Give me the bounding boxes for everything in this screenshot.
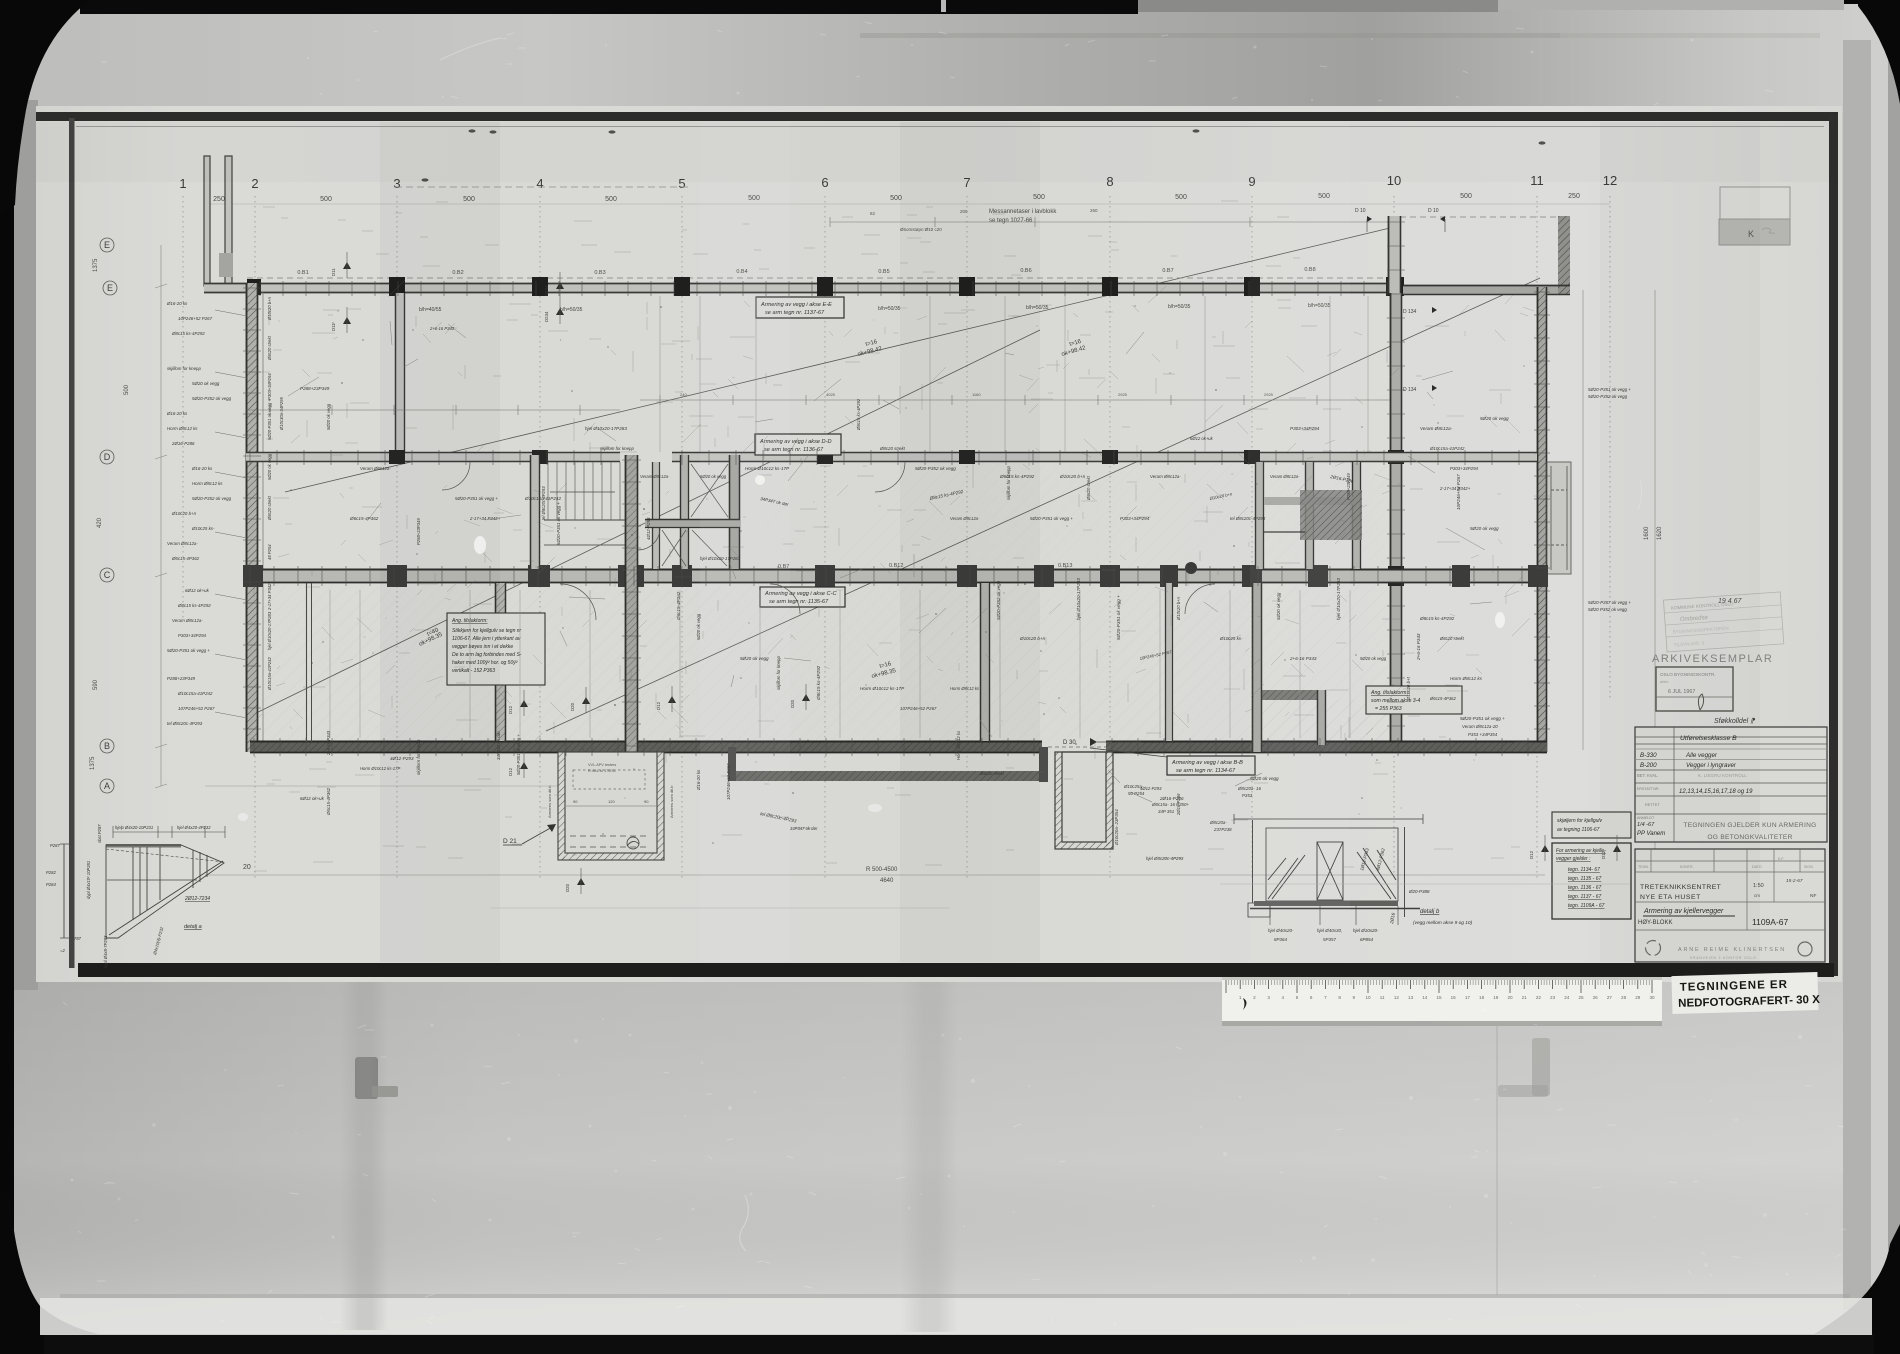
svg-text:Ø8c20 strekt: Ø8c20 strekt [879, 446, 906, 451]
svg-text:2Ø16-P286: 2Ø16-P286 [171, 441, 195, 446]
svg-text:107P246+52 P267: 107P246+52 P267 [726, 763, 731, 800]
svg-text:21: 21 [1522, 995, 1528, 1000]
svg-text:tel Ø8c20c-4P293: tel Ø8c20c-4P293 [541, 486, 546, 520]
svg-text:Ø10c30a-34P295: Ø10c30a-34P295 [279, 397, 284, 431]
svg-text:VVL.APV testers: VVL.APV testers [588, 763, 616, 767]
svg-text:tegn. 1135 - 67: tegn. 1135 - 67 [1568, 876, 1601, 882]
svg-text:Ø6c15-4P362: Ø6c15-4P362 [1429, 696, 1457, 701]
svg-text:48 P254: 48 P254 [267, 544, 272, 560]
svg-text:tel Ø8c20c-4P293: tel Ø8c20c-4P293 [1230, 516, 1266, 521]
svg-text:Veram Ø8c12a-: Veram Ø8c12a- [950, 516, 980, 521]
svg-text:1: 1 [1239, 995, 1242, 1000]
svg-text:=2: =2 [60, 948, 65, 953]
svg-text:22: 22 [1536, 995, 1542, 1000]
svg-text:Veram Ø8c12a-: Veram Ø8c12a- [1270, 474, 1300, 479]
svg-text:34P347 ok dør: 34P347 ok dør [496, 731, 501, 760]
svg-text:5Ø20-P351 ok vegg +: 5Ø20-P351 ok vegg + [1460, 716, 1505, 721]
svg-text:2+6-16 P343: 2+6-16 P343 [326, 730, 331, 756]
svg-text:Ø8c20a-: Ø8c20a- [1209, 820, 1227, 825]
svg-text:26: 26 [1593, 995, 1599, 1000]
svg-text:Ø8c20 strekt: Ø8c20 strekt [1439, 636, 1465, 641]
svg-text:P303+34P294: P303+34P294 [1290, 426, 1320, 431]
svg-text:Ø16-20 ks: Ø16-20 ks [166, 301, 188, 306]
svg-text:Horm Ø10c12 ks-17P: Horm Ø10c12 ks-17P [860, 686, 905, 691]
svg-text:5Ø20 P352 ok vegg: 5Ø20 P352 ok vegg [1588, 607, 1627, 612]
svg-text:2: 2 [1253, 995, 1256, 1000]
svg-text:D20: D20 [570, 702, 575, 711]
svg-text:Ø8c20a- 16: Ø8c20a- 16 [1237, 786, 1262, 791]
svg-text:hjel Ø10x20-17P283: hjel Ø10x20-17P283 [1336, 578, 1341, 620]
svg-text:4Ø12-P293: 4Ø12-P293 [390, 756, 414, 761]
svg-text:8: 8 [1338, 995, 1341, 1000]
svg-text:D20: D20 [565, 883, 570, 892]
svg-text:7: 7 [1324, 995, 1327, 1000]
svg-text:D12: D12 [508, 767, 513, 776]
svg-text:A: A [104, 781, 110, 791]
svg-text:Horm Ø8c12 ks: Horm Ø8c12 ks [167, 426, 198, 431]
svg-text:Ø10c20a- 23P354: Ø10c20a- 23P354 [1114, 809, 1119, 846]
svg-text:5Ø20 ok vegg: 5Ø20 ok vegg [267, 453, 272, 480]
svg-text:4Ø12-P293: 4Ø12-P293 [646, 517, 651, 540]
svg-text:Ø8c15a- 16 P350+: Ø8c15a- 16 P350+ [1151, 802, 1189, 807]
svg-text:107P246+52 P267: 107P246+52 P267 [178, 706, 215, 711]
svg-text:dypl Ø4x8-7P283: dypl Ø4x8-7P283 [103, 935, 108, 968]
svg-text:23: 23 [1550, 995, 1556, 1000]
svg-text:hjel Ø8c20c-4P293: hjel Ø8c20c-4P293 [1146, 856, 1184, 861]
svg-text:E: E [107, 283, 113, 293]
svg-text:Ø8c20 strekt: Ø8c20 strekt [267, 495, 272, 521]
svg-text:tegn. 1134- 67: tegn. 1134- 67 [1568, 867, 1600, 873]
svg-text:P284: P284 [46, 882, 56, 887]
svg-text:hjel Ø10x20-17P283: hjel Ø10x20-17P283 [585, 426, 627, 431]
svg-text:Horm Ø8c12 ks: Horm Ø8c12 ks [1450, 676, 1483, 681]
svg-text:29: 29 [1635, 995, 1641, 1000]
svg-text:B: B [104, 741, 110, 751]
svg-text:6P854: 6P854 [1360, 937, 1374, 942]
svg-text:Veram Ø8c12a-: Veram Ø8c12a- [167, 541, 198, 546]
svg-text:12: 12 [1394, 995, 1400, 1000]
svg-text:For armering av kjelle-: For armering av kjelle- [1556, 848, 1606, 854]
svg-text:tegn. 1109A - 67: tegn. 1109A - 67 [1568, 903, 1605, 909]
svg-text:skjøljern for kjellgulv: skjøljern for kjellgulv [1557, 818, 1603, 824]
svg-text:Ø10c25 ks-: Ø10c25 ks- [191, 526, 215, 531]
svg-text:Ø10c25 ks-: Ø10c25 ks- [1219, 636, 1243, 641]
svg-text:2+6-16 P343: 2+6-16 P343 [429, 326, 455, 331]
svg-text:17: 17 [1465, 995, 1471, 1000]
svg-text:5Ø20 ok vegg: 5Ø20 ok vegg [1276, 592, 1281, 620]
svg-text:vegger gjelder :: vegger gjelder : [1556, 856, 1591, 862]
svg-text:590: 590 [93, 679, 99, 690]
svg-text:20: 20 [1507, 995, 1513, 1000]
svg-text:Veram Ø8c12a-: Veram Ø8c12a- [1420, 426, 1453, 431]
svg-text:D11: D11 [331, 268, 336, 276]
svg-text:b/h=50/35: b/h=50/35 [878, 306, 901, 312]
svg-text:Horm Ø10c12 ks-17P: Horm Ø10c12 ks-17P [745, 466, 790, 471]
svg-text:K.F: K.F [1778, 857, 1784, 861]
svg-text:Ø16-20 ks: Ø16-20 ks [696, 769, 701, 791]
svg-text:P287: P287 [50, 843, 60, 848]
svg-text:(vegg mellom akse 9 og 10): (vegg mellom akse 9 og 10) [1413, 920, 1473, 926]
svg-text:28: 28 [1621, 995, 1627, 1000]
svg-text:6Ø12 ok+uk: 6Ø12 ok+uk [300, 796, 325, 801]
svg-text:Ø6c15-4P362: Ø6c15-4P362 [676, 591, 681, 621]
svg-text:som mellom akse 3-4: som mellom akse 3-4 [1371, 698, 1420, 704]
svg-text:D234: D234 [544, 285, 549, 296]
svg-text:Horm Ø10c12 ks-17P: Horm Ø10c12 ks-17P [360, 766, 400, 771]
svg-text:Ø10c20 b+n: Ø10c20 b+n [171, 511, 197, 516]
svg-text:skjillom for knepp: skjillom for knepp [600, 446, 634, 451]
svg-text:D12: D12 [508, 705, 513, 714]
svg-text:Ø8c15 ks-4P292: Ø8c15 ks-4P292 [177, 603, 211, 608]
svg-text:D 10: D 10 [1428, 208, 1439, 214]
svg-text:500: 500 [1175, 194, 1187, 201]
svg-text:Veram Ø8c12a-: Veram Ø8c12a- [1150, 474, 1181, 479]
svg-text:Ø10c20 b+n: Ø10c20 b+n [1176, 596, 1181, 621]
svg-text:5Ø20-P352 ok vegg: 5Ø20-P352 ok vegg [1588, 394, 1628, 399]
svg-text:Ø8c20 strekt: Ø8c20 strekt [267, 335, 272, 361]
svg-text:Armeres som dtl.b: Armeres som dtl.b [547, 785, 552, 818]
svg-text:500: 500 [320, 196, 332, 203]
svg-text:skjillom for knepp: skjillom for knepp [776, 656, 781, 690]
svg-text:Ø6c15-4P362: Ø6c15-4P362 [171, 556, 200, 561]
svg-text:E: E [104, 240, 110, 250]
svg-text:18: 18 [1479, 995, 1485, 1000]
svg-text:dypl Ø4x10² 10P281: dypl Ø4x10² 10P281 [86, 861, 91, 899]
svg-text:Veram Ø8c12a-: Veram Ø8c12a- [172, 618, 203, 623]
svg-text:Ø20-P388: Ø20-P388 [1408, 889, 1430, 894]
svg-text:Ø10c20 b+n: Ø10c20 b+n [1019, 636, 1046, 641]
svg-text:Veram Ø8c12a-20: Veram Ø8c12a-20 [1462, 724, 1498, 729]
svg-text:34P 351: 34P 351 [1158, 809, 1175, 814]
svg-text:SIGN: SIGN [1804, 865, 1813, 869]
svg-text:Veram Ø8c12a-: Veram Ø8c12a- [360, 466, 391, 471]
svg-text:5Ø20-P352 ok vegg: 5Ø20-P352 ok vegg [192, 396, 232, 401]
svg-text:Ø10c20 b+n: Ø10c20 b+n [267, 296, 272, 321]
svg-text:P288+23P349: P288+23P349 [416, 518, 421, 545]
svg-text:500: 500 [605, 196, 617, 203]
svg-text:Ø8c20 strekt: Ø8c20 strekt [1086, 475, 1091, 501]
svg-text:90: 90 [644, 799, 649, 804]
svg-text:24: 24 [1564, 995, 1570, 1000]
svg-text:19: 19 [1493, 995, 1499, 1000]
svg-text:tegn. 1137 - 67: tegn. 1137 - 67 [1568, 894, 1601, 900]
svg-text:1375: 1375 [93, 258, 99, 272]
svg-text:Ø6c15-4P362: Ø6c15-4P362 [349, 516, 379, 521]
svg-text:D 30: D 30 [1063, 740, 1076, 746]
svg-text:5Ø20 ok vegg: 5Ø20 ok vegg [700, 474, 727, 479]
svg-text:Ø10c25a-: Ø10c25a- [1123, 784, 1144, 789]
svg-text:2-17+34 P342+: 2-17+34 P342+ [1439, 486, 1471, 491]
svg-text:P303+34P294: P303+34P294 [1120, 516, 1150, 521]
svg-text:11: 11 [1380, 995, 1385, 1000]
svg-text:Horm Ø8c12 ks: Horm Ø8c12 ks [192, 481, 223, 486]
svg-text:D234: D234 [544, 311, 549, 322]
svg-text:Armering av vegg i akse B-B: Armering av vegg i akse B-B [1171, 760, 1243, 766]
svg-text:6Ø12 ok+uk: 6Ø12 ok+uk [1190, 436, 1214, 441]
svg-text:P282: P282 [46, 870, 56, 875]
svg-text:Ø8c15 ks-4P292: Ø8c15 ks-4P292 [1419, 616, 1455, 621]
svg-text:P353: P353 [1242, 793, 1253, 798]
svg-text:15: 15 [1436, 995, 1442, 1000]
svg-text:Ø16-20 ks: Ø16-20 ks [166, 411, 188, 416]
svg-text:se arm tegn nr. 1134-67: se arm tegn nr. 1134-67 [1176, 768, 1236, 774]
svg-text:Ø8c15 ks-4P292: Ø8c15 ks-4P292 [816, 665, 821, 701]
svg-text:20: 20 [243, 864, 251, 871]
svg-text:D11: D11 [331, 323, 336, 331]
svg-text:5Ø20-P351 ok vegg +: 5Ø20-P351 ok vegg + [1030, 516, 1073, 521]
svg-text:P288+23P349: P288+23P349 [300, 386, 330, 391]
svg-text:240: 240 [680, 392, 687, 397]
svg-text:5Ø20-P351 ok vegg +: 5Ø20-P351 ok vegg + [455, 496, 498, 501]
svg-text:5Ø20-P357 ok vegg +: 5Ø20-P357 ok vegg + [1588, 600, 1631, 605]
svg-text:2Ø12-7234: 2Ø12-7234 [184, 896, 210, 902]
svg-text:107P246+52 P267: 107P246+52 P267 [900, 706, 937, 711]
svg-text:Veram Ø8c12a-: Veram Ø8c12a- [640, 474, 670, 479]
svg-text:detalj b: detalj b [1420, 909, 1440, 915]
svg-text:2+6-16 P343: 2+6-16 P343 [1416, 633, 1421, 661]
svg-text:hjel Ø10x20-17P283: hjel Ø10x20-17P283 [267, 611, 272, 650]
svg-text:5Ø20-P352 ok vegg: 5Ø20-P352 ok vegg [915, 466, 956, 471]
svg-text:5Ø20 ok vegg: 5Ø20 ok vegg [696, 613, 701, 640]
svg-text:0.B13: 0.B13 [1058, 563, 1072, 569]
svg-text:9: 9 [1353, 995, 1356, 1000]
svg-text:Horm Ø8c12 ks: Horm Ø8c12 ks [956, 730, 961, 760]
svg-text:Ø10c15a-41P242: Ø10c15a-41P242 [267, 657, 272, 691]
svg-text:Ø10c15a-41P242: Ø10c15a-41P242 [1429, 446, 1465, 451]
svg-text:260: 260 [1090, 208, 1098, 213]
svg-text:30: 30 [1649, 995, 1655, 1000]
svg-text:av tegning 1106-67: av tegning 1106-67 [1557, 827, 1600, 833]
svg-text:10P246+52 P267: 10P246+52 P267 [178, 316, 213, 321]
svg-text:5Ø20 ok vegg: 5Ø20 ok vegg [192, 381, 220, 386]
svg-text:D12: D12 [1529, 850, 1534, 859]
svg-text:P303+34P294: P303+34P294 [178, 633, 207, 638]
svg-text:5Ø20-P351 ok vegg +: 5Ø20-P351 ok vegg + [556, 502, 561, 545]
svg-text:0.B5: 0.B5 [878, 269, 889, 275]
svg-text:C: C [104, 570, 111, 580]
svg-text:6Ø12 ok+uk: 6Ø12 ok+uk [185, 588, 210, 593]
svg-text:4: 4 [1282, 995, 1285, 1000]
svg-text:Ø8c15 ks-4P292: Ø8c15 ks-4P292 [171, 331, 205, 336]
svg-text:120: 120 [608, 799, 615, 804]
svg-text:NF: NF [1810, 893, 1816, 899]
svg-text:1375: 1375 [90, 756, 96, 770]
svg-text:4025: 4025 [826, 392, 836, 397]
svg-text:P288+23P349: P288+23P349 [1346, 473, 1351, 500]
svg-text:2925: 2925 [1118, 392, 1128, 397]
svg-text:D20: D20 [790, 699, 795, 708]
svg-text:5Ø20-P351 ok vegg +: 5Ø20-P351 ok vegg + [1116, 595, 1121, 640]
svg-text:Ø10c15a-41P242: Ø10c15a-41P242 [177, 691, 213, 696]
svg-text:Ø8c20 strekt: Ø8c20 strekt [979, 771, 1005, 776]
svg-text:b/h=50/35: b/h=50/35 [1168, 304, 1191, 310]
svg-text:500: 500 [124, 384, 130, 395]
svg-text:hjel Ø10x20-: hjel Ø10x20- [1353, 928, 1379, 933]
svg-text:3: 3 [1267, 995, 1270, 1000]
svg-text:Ø10c20 b+t: Ø10c20 b+t [1406, 676, 1411, 701]
svg-text:skjillom for knepp: skjillom for knepp [167, 366, 201, 371]
svg-text:hjelp Ø4x20-10P231: hjelp Ø4x20-10P231 [115, 825, 153, 830]
svg-text:27: 27 [1607, 995, 1613, 1000]
svg-text:P353 +34P354: P353 +34P354 [1468, 732, 1498, 737]
svg-text:D 10: D 10 [1355, 208, 1366, 214]
svg-text:250: 250 [1568, 193, 1580, 200]
svg-text:2-17+34 P342+: 2-17+34 P342+ [267, 581, 272, 611]
svg-text:Ø8c15 ks-4P292: Ø8c15 ks-4P292 [999, 474, 1035, 479]
svg-text:25: 25 [1578, 995, 1584, 1000]
svg-text:= 255 P363: = 255 P363 [1375, 706, 1402, 712]
svg-text:82: 82 [870, 211, 876, 216]
svg-text:0.B7: 0.B7 [1162, 268, 1173, 274]
svg-text:R.VAL.M 170/35: R.VAL.M 170/35 [588, 769, 616, 773]
svg-text:10: 10 [1365, 995, 1371, 1000]
svg-text:4640: 4640 [880, 878, 894, 884]
svg-text:0.B1: 0.B1 [297, 270, 308, 276]
svg-text:10P246+52 P267: 10P246+52 P267 [1456, 474, 1461, 510]
svg-text:500: 500 [1460, 193, 1472, 200]
svg-text:237P238: 237P238 [1213, 827, 1232, 832]
svg-text:5Ø20-P352 ok vegg: 5Ø20-P352 ok vegg [192, 496, 232, 501]
svg-text:D: D [104, 452, 111, 462]
svg-text:5Ø20-P351 ok vegg +: 5Ø20-P351 ok vegg + [267, 399, 272, 440]
svg-text:15-2-67: 15-2-67 [1786, 878, 1803, 884]
svg-text:D 134: D 134 [1403, 309, 1417, 315]
svg-text:90: 90 [573, 799, 578, 804]
svg-text:hjel Ø10x20-17P283: hjel Ø10x20-17P283 [1076, 578, 1081, 620]
svg-text:16: 16 [1451, 995, 1457, 1000]
svg-text:hjel Ø4x20-4P232: hjel Ø4x20-4P232 [177, 825, 211, 830]
svg-text:787: 787 [74, 936, 82, 941]
svg-text:5Ø20 ok vegg: 5Ø20 ok vegg [740, 656, 769, 661]
svg-text:5Ø20-P351 ok vegg +: 5Ø20-P351 ok vegg + [167, 648, 210, 653]
svg-text:D 134: D 134 [1403, 387, 1417, 393]
svg-text:tegn. 1136 - 67: tegn. 1136 - 67 [1568, 885, 1601, 891]
svg-text:Ø6c15-4P362: Ø6c15-4P362 [326, 787, 331, 816]
svg-text:Armeres som dtl.b: Armeres som dtl.b [669, 785, 674, 818]
svg-text:Ø16-20 ks: Ø16-20 ks [191, 466, 213, 471]
svg-text:14: 14 [1422, 995, 1428, 1000]
svg-text:5Ø20 ok vegg: 5Ø20 ok vegg [1470, 526, 1499, 531]
svg-text:5Ø20 ok vegg: 5Ø20 ok vegg [326, 403, 331, 430]
svg-text:5: 5 [1296, 995, 1299, 1000]
svg-text:420: 420 [97, 517, 103, 528]
svg-text:R 500-4500: R 500-4500 [866, 867, 898, 873]
svg-text:5Ø20-P351 ok vegg +: 5Ø20-P351 ok vegg + [1588, 387, 1631, 392]
svg-text:sbst.P287: sbst.P287 [97, 824, 102, 843]
svg-text:hjel Ø10x20-17P283: hjel Ø10x20-17P283 [700, 556, 741, 561]
svg-text:5Ø20 ok vegg: 5Ø20 ok vegg [1480, 416, 1509, 421]
svg-text:D12: D12 [656, 701, 661, 710]
svg-text:34P347 ok dør: 34P347 ok dør [790, 826, 818, 831]
svg-text:P303+34P294: P303+34P294 [267, 373, 272, 400]
svg-text:Horm Ø8c12 ks: Horm Ø8c12 ks [950, 686, 980, 691]
svg-text:P303+34P294: P303+34P294 [1450, 466, 1479, 471]
svg-text:b/h=50/35: b/h=50/35 [560, 307, 583, 313]
svg-text:Ang. tilslaktorm:: Ang. tilslaktorm: [1370, 690, 1408, 696]
svg-text:Ø8c15 ks-4P292: Ø8c15 ks-4P292 [856, 398, 861, 431]
svg-text:detalj a: detalj a [184, 924, 202, 930]
svg-text:5Ø20-P352 ok vegg: 5Ø20-P352 ok vegg [996, 580, 1001, 620]
svg-text:6: 6 [1310, 995, 1313, 1000]
svg-text:P288+23P349: P288+23P349 [167, 676, 196, 681]
svg-text:tel Ø8c20c-4P293: tel Ø8c20c-4P293 [167, 721, 203, 726]
svg-text:skjillom for knepp: skjillom for knepp [1006, 466, 1011, 500]
svg-text:D12: D12 [1601, 850, 1606, 859]
svg-text:13: 13 [1408, 995, 1414, 1000]
svg-text:5Ø20 ok vegg: 5Ø20 ok vegg [1360, 656, 1387, 661]
svg-text:2+6-16 P343: 2+6-16 P343 [1289, 656, 1317, 661]
svg-text:skjillom for knepp: skjillom for knepp [416, 739, 421, 775]
svg-text:250: 250 [213, 196, 225, 203]
svg-text:50 P254: 50 P254 [1128, 791, 1145, 796]
svg-text:Ø10c20 b+n: Ø10c20 b+n [1059, 474, 1086, 479]
svg-text:0.B3: 0.B3 [594, 270, 605, 276]
